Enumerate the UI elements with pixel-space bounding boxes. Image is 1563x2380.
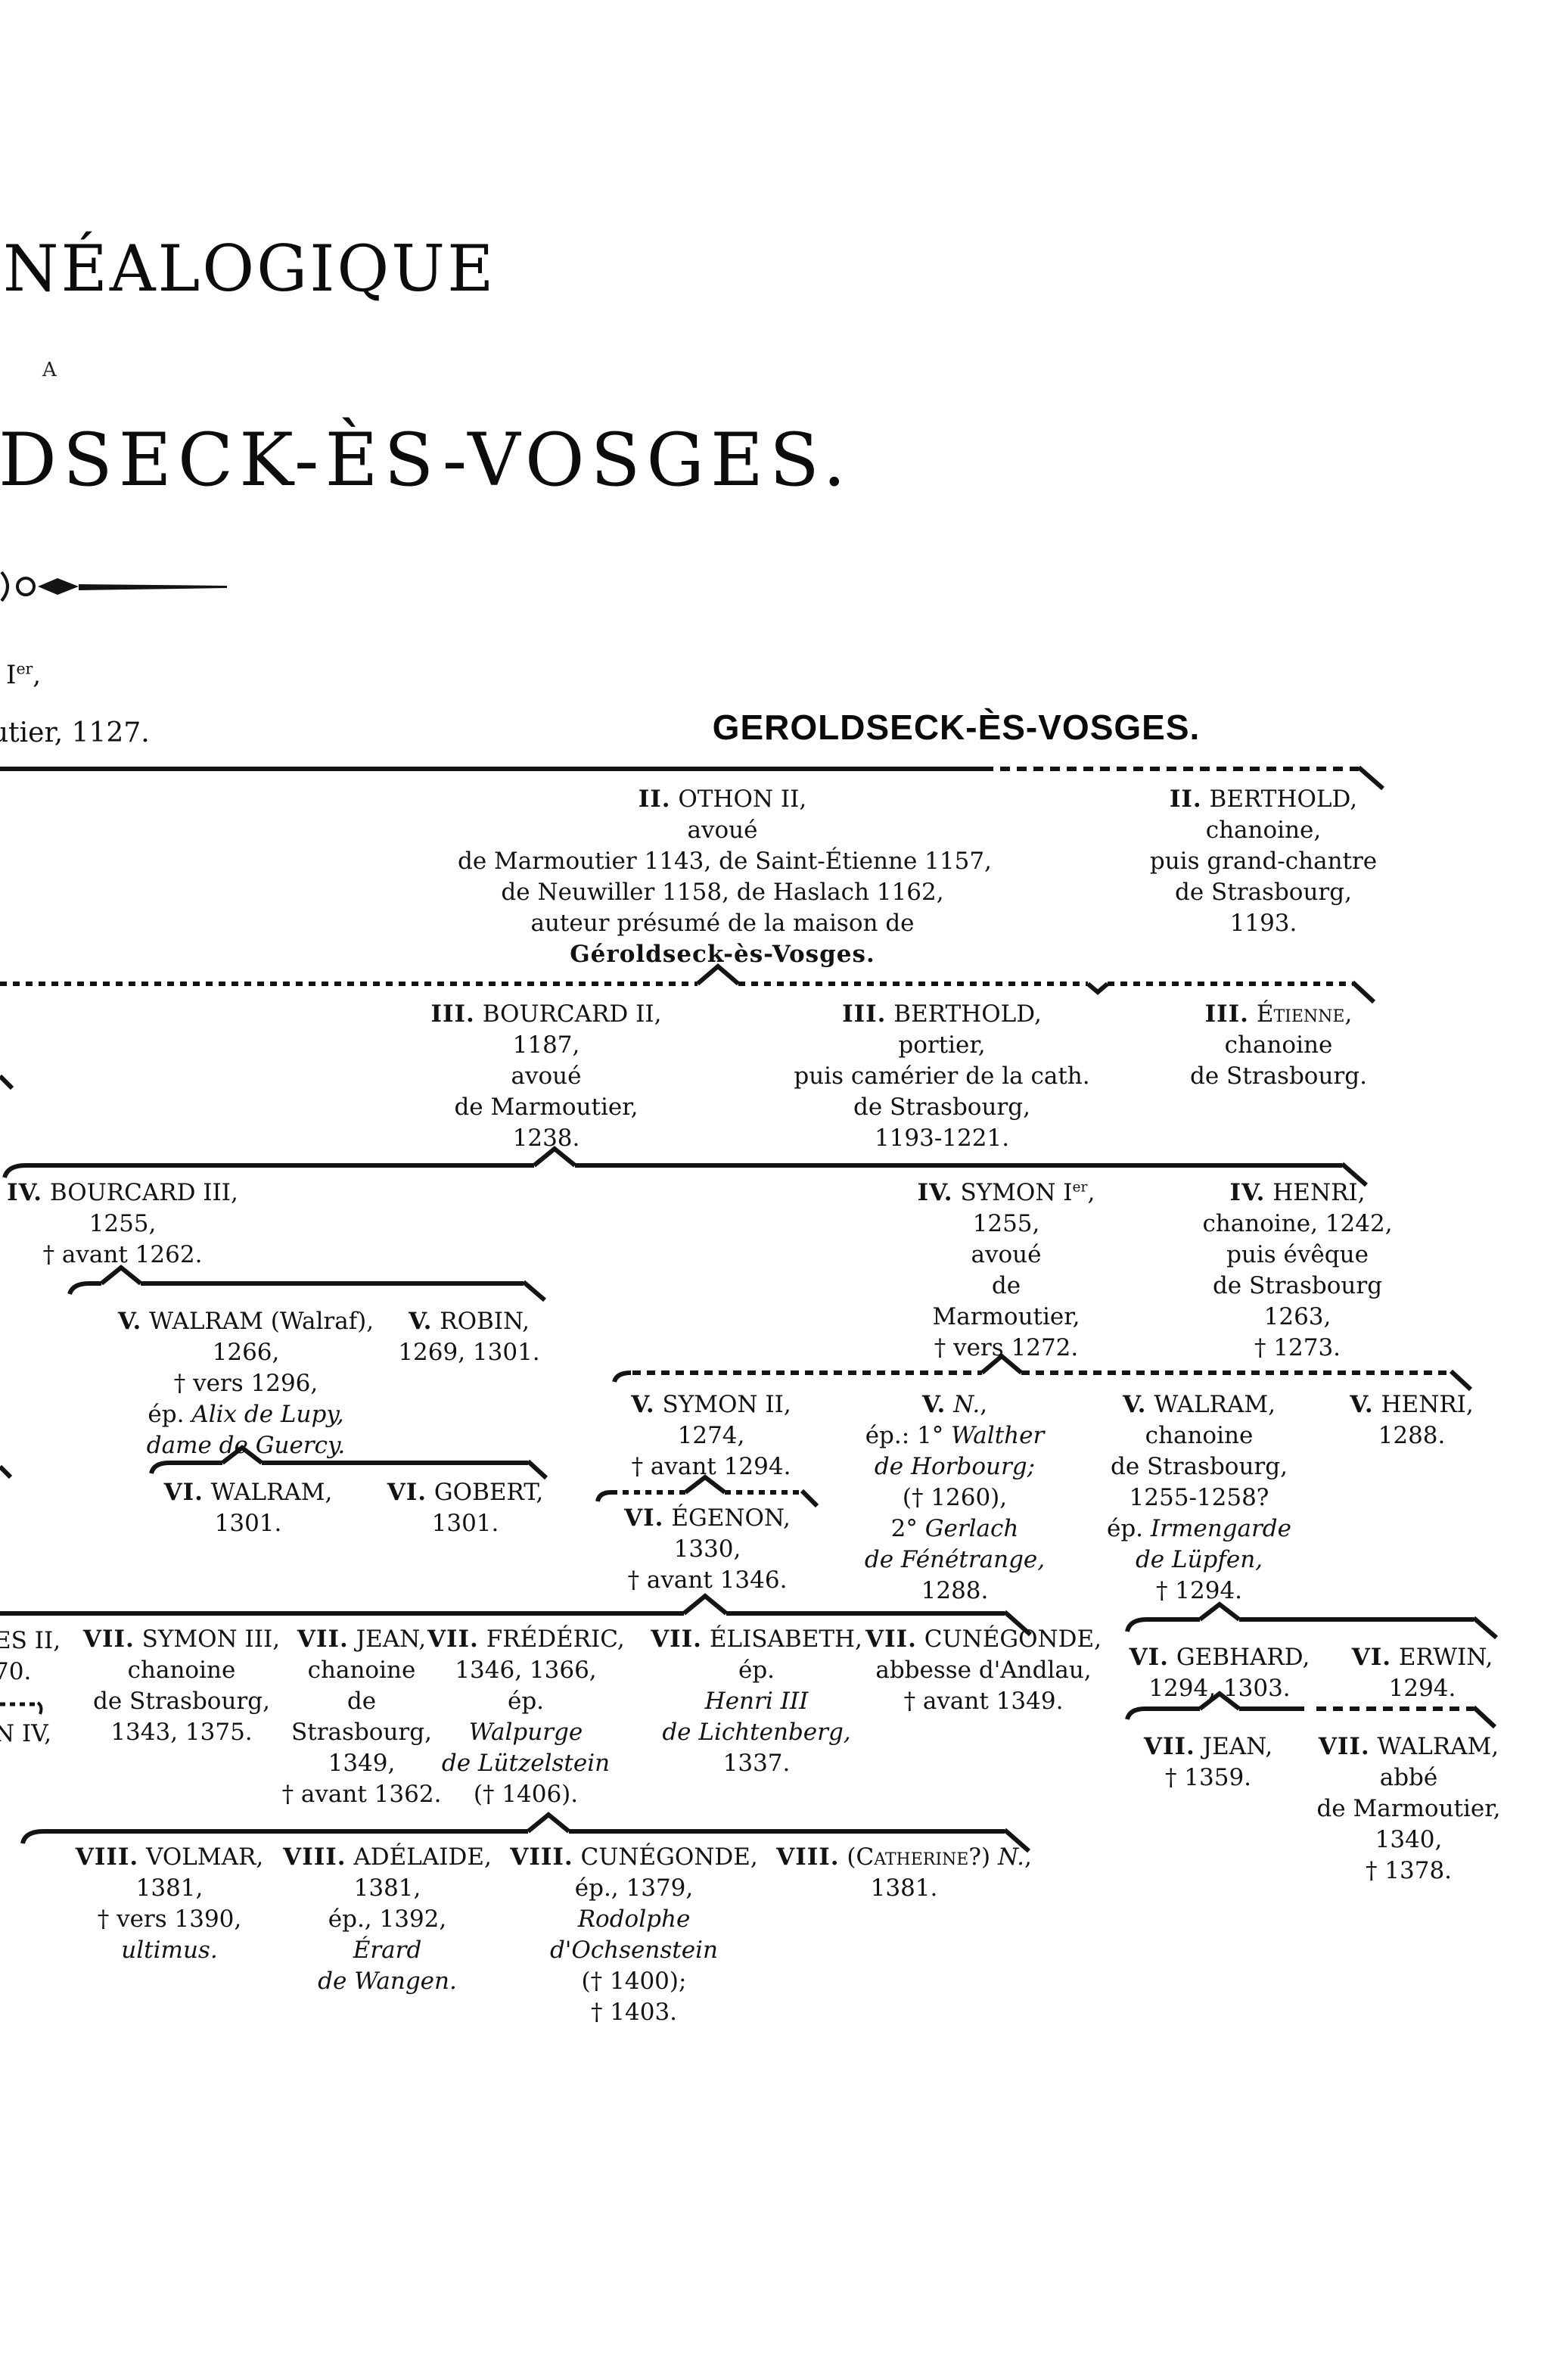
text-line: chanoine — [278, 1655, 445, 1686]
text-line: ép., 1379, — [509, 1873, 759, 1904]
person-entry-etienne: III. Étienne,chanoinede Strasbourg. — [1150, 999, 1407, 1092]
text-line: VII. JEAN, — [1117, 1731, 1299, 1762]
text-line: 1193-1221. — [775, 1123, 1108, 1154]
margin-fragment-es-ii: ES II, — [0, 1627, 61, 1654]
text-line: de Fénétrange, — [841, 1545, 1068, 1576]
text-line: † avant 1294. — [605, 1451, 817, 1482]
person-entry-erwin: VI. ERWIN,1294. — [1332, 1642, 1513, 1704]
text-line: II. BERTHOLD, — [1105, 784, 1422, 815]
text-line: 1288. — [1328, 1420, 1495, 1451]
text-line: 1381, — [64, 1873, 275, 1904]
text-line: 1263, — [1176, 1302, 1419, 1333]
text-line: de Wangen. — [274, 1966, 501, 1997]
text-line: VII. FRÉDÉRIC, — [427, 1624, 624, 1655]
text-line: 1381, — [274, 1873, 501, 1904]
person-entry-berthold-iii: III. BERTHOLD,portier,puis camérier de l… — [775, 999, 1108, 1154]
text-line: V. WALRAM, — [1086, 1389, 1313, 1420]
text-line: avoué — [395, 1061, 698, 1092]
person-entry-walram-walraf: V. WALRAM (Walraf),1266,† vers 1296,ép. … — [95, 1306, 397, 1461]
text-line: † vers 1296, — [95, 1368, 397, 1399]
text-line: de — [885, 1271, 1127, 1302]
page-title-fragment-geroldseck: DSECK-ÈS-VOSGES. — [0, 418, 852, 502]
text-line: de Lichtenberg, — [643, 1717, 870, 1748]
text-line: Érard — [274, 1935, 501, 1966]
text-line: chanoine — [1150, 1030, 1407, 1061]
scanned-genealogy-page: NÉALOGIQUE A DSECK-ÈS-VOSGES. Ier, utier… — [0, 0, 1563, 2380]
person-entry-walram-vi: VI. WALRAM,1301. — [150, 1477, 346, 1539]
person-entry-walram-abbe: VII. WALRAM,abbéde Marmoutier,1340,† 137… — [1295, 1731, 1522, 1887]
text-line: Marmoutier, — [885, 1302, 1127, 1333]
text-line: 1238. — [395, 1123, 698, 1154]
person-entry-henri-v: V. HENRI,1288. — [1328, 1389, 1495, 1451]
text-line: de Lützelstein — [427, 1748, 624, 1779]
text-line: † 1403. — [509, 1997, 759, 2028]
person-entry-volmar: VIII. VOLMAR,1381,† vers 1390,ultimus. — [64, 1842, 275, 1966]
person-entry-adelaide: VIII. ADÉLAIDE,1381,ép., 1392,Érardde Wa… — [274, 1842, 501, 1997]
text-line: † avant 1349. — [855, 1686, 1112, 1717]
text-line: V. ROBIN, — [386, 1306, 552, 1337]
text-line: abbé — [1295, 1762, 1522, 1794]
text-line: avoué — [458, 815, 987, 846]
text-line: V. WALRAM (Walraf), — [95, 1306, 397, 1337]
text-line: de Strasbourg, — [1105, 877, 1422, 908]
text-line: portier, — [775, 1030, 1108, 1061]
text-line: VIII. (Catherine?) N., — [753, 1842, 1055, 1873]
person-entry-n-wife-walther: V. N.,ép.: 1° Waltherde Horbourg;(† 1260… — [841, 1389, 1068, 1607]
person-entry-henri-iv: IV. HENRI,chanoine, 1242,puis évêquede S… — [1176, 1178, 1419, 1364]
text-line: VI. GOBERT, — [374, 1477, 556, 1508]
person-entry-catherine-n: VIII. (Catherine?) N.,1381. — [753, 1842, 1055, 1904]
margin-fragment-70: 70. — [0, 1658, 31, 1685]
text-line: VII. JEAN, — [278, 1624, 445, 1655]
text-line: 1346, 1366, — [427, 1655, 624, 1686]
margin-dash-fragment — [0, 1703, 41, 1714]
text-line: V. HENRI, — [1328, 1389, 1495, 1420]
text-line: Henri III — [643, 1686, 870, 1717]
text-line: 1294, 1303. — [1098, 1673, 1341, 1704]
person-entry-gebhard: VI. GEBHARD,1294, 1303. — [1098, 1642, 1341, 1704]
text-line: 2° Gerlach — [841, 1514, 1068, 1545]
text-line: VII. SYMON III, — [57, 1624, 306, 1655]
text-line: 1255, — [885, 1209, 1127, 1240]
text-line: † avant 1346. — [601, 1565, 813, 1596]
stray-mark — [0, 1076, 12, 1088]
text-line: IV. BOURCARD III, — [0, 1178, 251, 1209]
text-line: de Strasbourg, — [1086, 1451, 1313, 1482]
text-line: III. BERTHOLD, — [775, 999, 1108, 1030]
text-line: VIII. ADÉLAIDE, — [274, 1842, 501, 1873]
text-line: 1269, 1301. — [386, 1337, 552, 1368]
text-line: de — [278, 1686, 445, 1717]
text-line: 1301. — [150, 1508, 346, 1539]
text-line: 1330, — [601, 1534, 813, 1565]
person-entry-cunegonde-abbesse: VII. CUNÉGONDE,abbesse d'Andlau,† avant … — [855, 1624, 1112, 1717]
text-line: de Horbourg; — [841, 1451, 1068, 1482]
person-entry-walram-chanoine: V. WALRAM,chanoinede Strasbourg,1255-125… — [1086, 1389, 1313, 1607]
text-line: † 1294. — [1086, 1576, 1313, 1607]
text-line: IV. SYMON Ier, — [885, 1178, 1127, 1209]
text-line: de Marmoutier, — [1295, 1794, 1522, 1825]
text-line: auteur présumé de la maison de — [458, 908, 987, 939]
text-line: d'Ochsenstein — [509, 1935, 759, 1966]
text-line: VI. ÉGENON, — [601, 1503, 813, 1534]
text-line: 1294. — [1332, 1673, 1513, 1704]
text-line: III. BOURCARD II, — [395, 999, 698, 1030]
text-line: chanoine, 1242, — [1176, 1209, 1419, 1240]
text-line: ép. Irmengarde — [1086, 1514, 1313, 1545]
text-line: 1274, — [605, 1420, 817, 1451]
text-line: chanoine — [1086, 1420, 1313, 1451]
text-line: III. Étienne, — [1150, 999, 1407, 1030]
brace-gen3 — [0, 966, 1374, 1002]
text-line: 1266, — [95, 1337, 397, 1368]
text-line: 1288. — [841, 1576, 1068, 1607]
text-line: de Neuwiller 1158, de Haslach 1162, — [458, 877, 987, 908]
text-line: † 1273. — [1176, 1333, 1419, 1364]
text-line: ép., 1392, — [274, 1904, 501, 1935]
text-line: puis camérier de la cath. — [775, 1061, 1108, 1092]
person-entry-othon-ii: II. OTHON II,avouéde Marmoutier 1143, de… — [458, 784, 987, 970]
text-line: V. N., — [841, 1389, 1068, 1420]
text-line: Strasbourg, — [278, 1717, 445, 1748]
text-line: de Strasbourg — [1176, 1271, 1419, 1302]
text-line: Géroldseck-ès-Vosges. — [458, 939, 987, 970]
page-title-fragment-genealogique: NÉALOGIQUE — [3, 232, 496, 306]
person-entry-frederic: VII. FRÉDÉRIC,1346, 1366,ép.Walpurgede L… — [427, 1624, 624, 1810]
text-line: 1255, — [0, 1209, 251, 1240]
text-line: de Lüpfen, — [1086, 1545, 1313, 1576]
text-line: † avant 1362. — [278, 1779, 445, 1810]
text-line: 1193. — [1105, 908, 1422, 939]
text-line: de Marmoutier, — [395, 1092, 698, 1123]
text-line: avoué — [885, 1240, 1127, 1271]
text-line: VIII. CUNÉGONDE, — [509, 1842, 759, 1873]
text-line: 1187, — [395, 1030, 698, 1061]
text-line: 1381. — [753, 1873, 1055, 1904]
text-line: puis évêque — [1176, 1240, 1419, 1271]
text-line: de Strasbourg, — [775, 1092, 1108, 1123]
person-entry-symon-ier: IV. SYMON Ier,1255,avouédeMarmoutier,† v… — [885, 1178, 1127, 1364]
person-entry-jean-chanoine: VII. JEAN,chanoinedeStrasbourg,1349,† av… — [278, 1624, 445, 1810]
text-line: abbesse d'Andlau, — [855, 1655, 1112, 1686]
person-entry-robin: V. ROBIN,1269, 1301. — [386, 1306, 552, 1368]
text-line: († 1400); — [509, 1966, 759, 1997]
text-line: Rodolphe — [509, 1904, 759, 1935]
text-line: V. SYMON II, — [605, 1389, 817, 1420]
text-line: VII. ÉLISABETH, — [643, 1624, 870, 1655]
person-entry-elisabeth: VII. ÉLISABETH,ép.Henri IIIde Lichtenber… — [643, 1624, 870, 1779]
text-line: VIII. VOLMAR, — [64, 1842, 275, 1873]
section-heading: GEROLDSECK-ÈS-VOSGES. — [640, 707, 1272, 748]
text-line: VII. WALRAM, — [1295, 1731, 1522, 1762]
text-line: 1349, — [278, 1748, 445, 1779]
text-line: IV. HENRI, — [1176, 1178, 1419, 1209]
text-line: dame de Guercy. — [95, 1430, 397, 1461]
text-line: 1301. — [374, 1508, 556, 1539]
person-entry-gobert: VI. GOBERT,1301. — [374, 1477, 556, 1539]
text-line: 1337. — [643, 1748, 870, 1779]
text-line: ép. — [643, 1655, 870, 1686]
margin-fragment-utier-1127: utier, 1127. — [0, 717, 150, 748]
text-line: puis grand-chantre — [1105, 846, 1422, 877]
text-line: Walpurge — [427, 1717, 624, 1748]
margin-fragment-ier: Ier, — [6, 660, 41, 690]
text-line: † 1378. — [1295, 1856, 1522, 1887]
text-line: † 1359. — [1117, 1762, 1299, 1794]
text-line: 1255-1258? — [1086, 1482, 1313, 1514]
text-line: († 1260), — [841, 1482, 1068, 1514]
text-line: chanoine — [57, 1655, 306, 1686]
text-line: † avant 1262. — [0, 1240, 251, 1271]
text-line: 1343, 1375. — [57, 1717, 306, 1748]
page-title-fragment-a: A — [42, 359, 57, 381]
text-line: VI. GEBHARD, — [1098, 1642, 1341, 1673]
margin-fragment-n-iv: N IV, — [0, 1720, 51, 1747]
person-entry-symon-ii: V. SYMON II,1274,† avant 1294. — [605, 1389, 817, 1482]
text-line: ép.: 1° Walther — [841, 1420, 1068, 1451]
person-entry-berthold-ii: II. BERTHOLD,chanoine,puis grand-chantre… — [1105, 784, 1422, 939]
text-line: de Strasbourg. — [1150, 1061, 1407, 1092]
text-line: 1340, — [1295, 1825, 1522, 1856]
text-line: chanoine, — [1105, 815, 1422, 846]
stray-mark — [0, 1467, 11, 1477]
text-line: ép. — [427, 1686, 624, 1717]
person-entry-cunegonde-ochsenstein: VIII. CUNÉGONDE,ép., 1379,Rodolphed'Ochs… — [509, 1842, 759, 2028]
brace-gebhard-erwin — [1127, 1604, 1496, 1638]
text-line: † vers 1272. — [885, 1333, 1127, 1364]
person-entry-bourcard-ii: III. BOURCARD II,1187,avouéde Marmoutier… — [395, 999, 698, 1154]
person-entry-symon-iii: VII. SYMON III,chanoinede Strasbourg,134… — [57, 1624, 306, 1748]
text-line: † vers 1390, — [64, 1904, 275, 1935]
text-line: VI. WALRAM, — [150, 1477, 346, 1508]
text-line: VI. ERWIN, — [1332, 1642, 1513, 1673]
text-line: de Strasbourg, — [57, 1686, 306, 1717]
person-entry-egenon: VI. ÉGENON,1330,† avant 1346. — [601, 1503, 813, 1596]
person-entry-jean-1359: VII. JEAN,† 1359. — [1117, 1731, 1299, 1794]
person-entry-bourcard-iii: IV. BOURCARD III,1255,† avant 1262. — [0, 1178, 251, 1271]
text-line: († 1406). — [427, 1779, 624, 1810]
divider-ornament — [2, 572, 227, 601]
text-line: II. OTHON II, — [458, 784, 987, 815]
text-line: VII. CUNÉGONDE, — [855, 1624, 1112, 1655]
text-line: de Marmoutier 1143, de Saint-Étienne 115… — [458, 846, 987, 877]
brace-walram-robin — [70, 1268, 545, 1300]
text-line: ép. Alix de Lupy, — [95, 1399, 397, 1430]
text-line: ultimus. — [64, 1935, 275, 1966]
